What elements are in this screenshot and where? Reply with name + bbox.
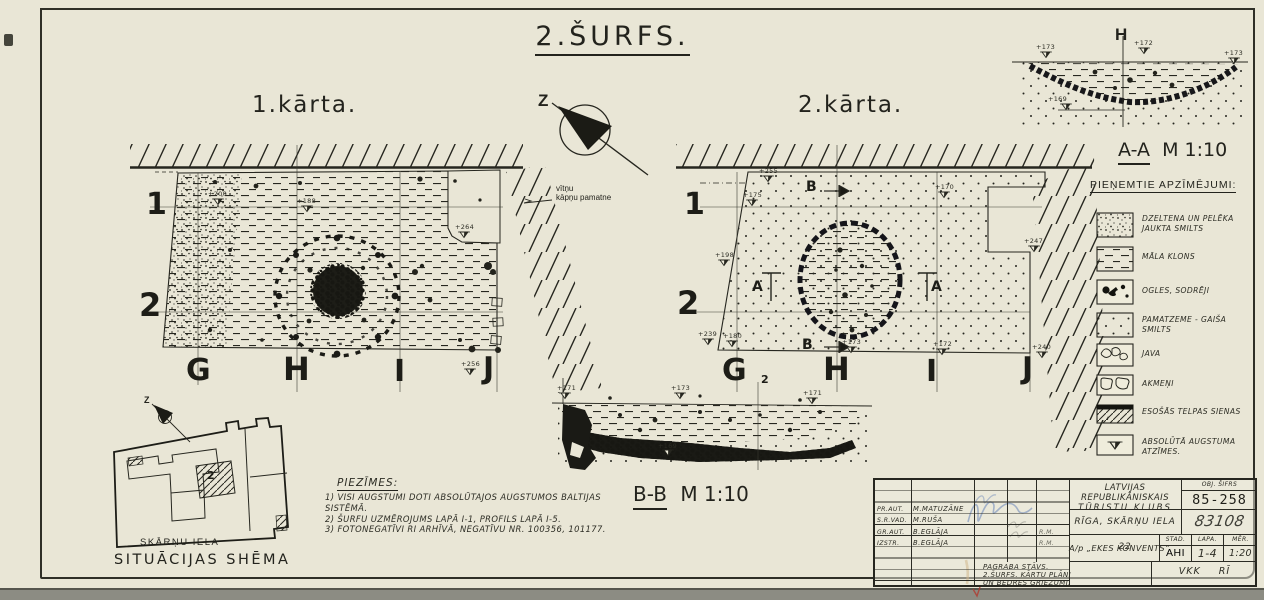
elevation-label: +172 bbox=[933, 341, 952, 348]
elevation-label: +171 bbox=[803, 390, 822, 397]
section-aa-name: A-A bbox=[1118, 139, 1150, 165]
sheet-label: LAPA. bbox=[1192, 535, 1223, 546]
legend-title-text: PIEŅEMTIE APZĪMĒJUMI: bbox=[1090, 179, 1236, 193]
elevation-label: +239 bbox=[698, 331, 717, 338]
section-bb-drawing bbox=[552, 378, 872, 470]
plan1-row-2: 2 bbox=[139, 288, 161, 323]
marker-a-right: A bbox=[931, 280, 942, 295]
elevation-label: +173 bbox=[842, 339, 861, 346]
marker-b-top: B bbox=[806, 180, 817, 195]
plan1-col-g: G bbox=[186, 354, 211, 387]
elevation-label: +198 bbox=[715, 252, 734, 259]
address-cell: RĪGA, SKĀRŅU IELA 22 bbox=[1069, 510, 1182, 535]
elevation-label: +173 bbox=[671, 385, 690, 392]
scale-cell: MĒR. 1:20 bbox=[1224, 535, 1257, 562]
sheet-title-text: 2.ŠURFS. bbox=[535, 21, 689, 56]
archive-mark: VKK RĪ bbox=[1152, 562, 1257, 582]
description-cell: PAGRABA STĀVS. 2.ŠURFS. KĀRTU PLĀNI UN B… bbox=[974, 562, 1152, 585]
plan2-col-j: J bbox=[1022, 352, 1033, 385]
elevation-label: +175 bbox=[743, 192, 762, 199]
elevation-label: +173 bbox=[1036, 44, 1055, 51]
scale-label: MĒR. bbox=[1224, 535, 1257, 546]
description-line1: PAGRABA STĀVS. bbox=[983, 563, 1151, 571]
section-aa-axis: H bbox=[1115, 26, 1127, 45]
titleblock-gridline bbox=[1007, 480, 1008, 562]
reg-number-cell: 83108 bbox=[1182, 510, 1257, 535]
elevation-label: +169 bbox=[1048, 96, 1067, 103]
archive-cell: VKK RĪ bbox=[1152, 562, 1257, 585]
elevation-label: +180 bbox=[723, 333, 742, 340]
object-code-label: OBJ. ŠIFRS bbox=[1182, 480, 1257, 491]
plan1-label: 1.kārta. bbox=[252, 93, 357, 118]
description-line2: 2.ŠURFS. KĀRTU PLĀNI bbox=[983, 571, 1151, 579]
elevation-label: +200 bbox=[208, 191, 227, 198]
sign-name-3: B.EGLĀJA bbox=[913, 527, 948, 538]
elevation-label: +264 bbox=[455, 224, 474, 231]
note-item-2: 2) ŠURFU UZMĒROJUMS LAPĀ I-1, PROFILS LA… bbox=[325, 515, 561, 524]
object-name-cell: A/p „EKES KONVENTS” bbox=[1069, 535, 1160, 562]
elevation-label: +255 bbox=[759, 168, 778, 175]
notes-title-text: PIEZĪMES: bbox=[337, 477, 398, 491]
note-item-1: 1) VISI AUGSTUMI DOTI ABSOLŪTAJOS AUGSTU… bbox=[325, 492, 645, 515]
plan1-row-1: 1 bbox=[146, 188, 167, 221]
object-code-value: 85-258 bbox=[1182, 491, 1257, 510]
legend-item-label: MĀLA KLONS bbox=[1142, 253, 1254, 261]
situation-room-label: 2 bbox=[207, 470, 215, 482]
stage-label: STAD. bbox=[1160, 535, 1191, 546]
elevation-label: +247 bbox=[1024, 238, 1043, 245]
plan2-col-h: H bbox=[823, 352, 850, 387]
plan1-col-j: J bbox=[483, 352, 494, 385]
sign-initials-4: R.M. bbox=[1039, 538, 1054, 549]
sheet-number-value: 1-4 bbox=[1192, 546, 1223, 561]
plan2-label: 2.kārta. bbox=[798, 93, 903, 118]
titleblock-gridline bbox=[1036, 480, 1037, 562]
object-name-text: A/p „EKES KONVENTS” bbox=[1069, 535, 1159, 562]
sign-role-2: S.R.VAD. bbox=[877, 515, 907, 526]
situation-scheme-drawing bbox=[114, 404, 288, 547]
legend-swatches bbox=[1097, 213, 1133, 455]
section-bb-scale: M 1:10 bbox=[680, 482, 749, 506]
sign-name-4: B.EGLĀJA bbox=[913, 538, 948, 549]
stage-value: AHI bbox=[1160, 546, 1191, 561]
reg-number-value: 83108 bbox=[1180, 510, 1259, 533]
sign-initials-3: R.M. bbox=[1039, 527, 1054, 538]
sign-role-4: IZSTR. bbox=[877, 538, 899, 549]
plan2-row-1: 1 bbox=[684, 188, 705, 221]
org-line1: LATVIJAS REPUBLIKĀNISKAIS bbox=[1069, 483, 1181, 503]
legend-item-label: ABSOLŪTĀ AUGSTUMA ATZĪMES. bbox=[1142, 437, 1254, 457]
stage-cell: STAD. AHI bbox=[1160, 535, 1192, 562]
plan2-row-2: 2 bbox=[677, 286, 699, 321]
sheet-title: 2.ŠURFS. bbox=[525, 22, 700, 52]
scale-value: 1:20 bbox=[1224, 546, 1257, 561]
section-aa-label: A-A M 1:10 bbox=[1118, 140, 1227, 161]
object-code-cell: OBJ. ŠIFRS 85-258 bbox=[1182, 480, 1257, 510]
plan1-annotation-line2: kāpņu pamatne bbox=[556, 194, 611, 203]
section-bb-label: B-B M 1:10 bbox=[633, 483, 749, 505]
legend-item-label: ESOŠĀS TELPAS SIENAS bbox=[1142, 407, 1254, 417]
description-line3: UN BEDRES GRIEZUMI. bbox=[983, 579, 1151, 587]
elevation-label: +188 bbox=[297, 198, 316, 205]
legend-title: PIEŅEMTIE APZĪMĒJUMI: bbox=[1090, 180, 1236, 192]
sign-role-1: PR.AUT. bbox=[877, 504, 904, 515]
situation-north-label: Z bbox=[144, 396, 150, 406]
sign-name-1: M.MATUZĀNE bbox=[913, 504, 964, 515]
elevation-label: +256 bbox=[461, 361, 480, 368]
section-aa-scale: M 1:10 bbox=[1162, 139, 1227, 161]
title-block: PR.AUT. M.MATUZĀNE S.R.VAD. M.RUŠA GR.AU… bbox=[873, 478, 1257, 587]
plan1-col-i: I bbox=[394, 355, 405, 388]
note-item-3: 3) FOTONEGATĪVI RI ARHĪVĀ, NEGATĪVU NR. … bbox=[325, 525, 606, 534]
legend-item-label: DZELTENA UN PELĒKA JAUKTA SMILTS bbox=[1142, 214, 1254, 234]
legend-item-label: PAMATZEME - GAIŠA SMILTS bbox=[1142, 315, 1254, 335]
elevation-label: +171 bbox=[557, 385, 576, 392]
legend-item-label: AKMEŅI bbox=[1142, 380, 1254, 388]
titleblock-gridline bbox=[911, 480, 912, 585]
elevation-label: +169 bbox=[658, 443, 677, 450]
sheet-number-cell: LAPA. 1-4 bbox=[1192, 535, 1224, 562]
plan2-col-i: I bbox=[926, 355, 937, 388]
notes-title: PIEZĪMES: bbox=[337, 478, 398, 490]
situation-title: SITUĀCIJAS SHĒMA bbox=[114, 553, 290, 569]
section-bb-grid-number: 2 bbox=[761, 374, 769, 386]
elevation-label: +172 bbox=[1134, 40, 1153, 47]
legend-item-label: OGLES, SODRĒJI bbox=[1142, 287, 1254, 295]
elevation-label: +173 bbox=[1224, 50, 1243, 57]
plan1-col-h: H bbox=[283, 352, 310, 387]
elevation-label: +240 bbox=[1032, 344, 1051, 351]
marker-a-left: A bbox=[752, 280, 763, 295]
marker-b-bottom: B bbox=[802, 338, 813, 353]
legend-item-label: JAVA bbox=[1142, 350, 1254, 358]
sign-role-3: GR.AUT. bbox=[877, 527, 905, 538]
plan2-col-g: G bbox=[722, 354, 747, 387]
elevation-label: +170 bbox=[935, 184, 954, 191]
org-cell: LATVIJAS REPUBLIKĀNISKAIS TŪRISTU KLUBS bbox=[1069, 480, 1182, 510]
sign-name-2: M.RUŠA bbox=[913, 515, 943, 526]
north-arrow bbox=[552, 103, 648, 175]
north-label: Z bbox=[538, 92, 548, 111]
situation-street-label: SKĀRŅU IELA bbox=[140, 538, 219, 548]
